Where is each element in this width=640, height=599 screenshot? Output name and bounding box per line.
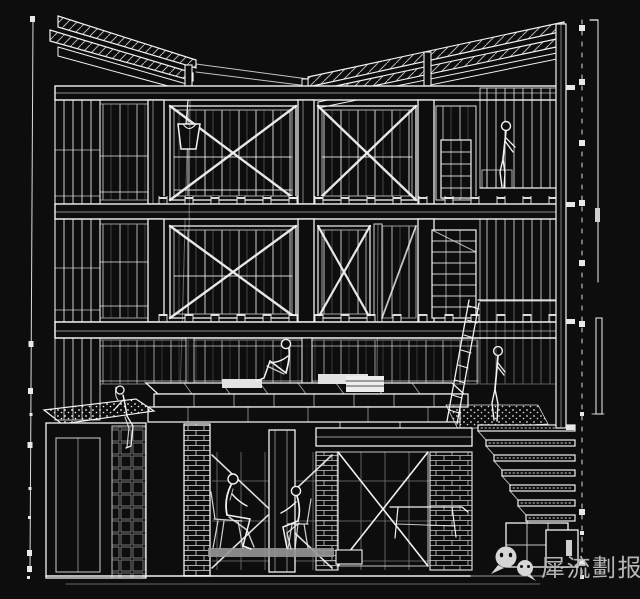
- braced-bay: [318, 106, 416, 200]
- column: [418, 100, 434, 204]
- planter-box: [44, 399, 154, 578]
- column: [148, 219, 164, 322]
- architectural-section-drawing: 犀流劃报: [0, 0, 640, 599]
- mat-stack: [346, 376, 384, 392]
- column: [148, 100, 164, 204]
- column: [298, 100, 314, 204]
- shelf-unit: [441, 140, 471, 198]
- brick-wall: [430, 452, 472, 570]
- ladder-shelf-unit: [432, 230, 476, 318]
- column: [298, 219, 314, 322]
- watermark-text: 犀流劃报: [541, 555, 640, 582]
- floor-strip: [208, 548, 334, 557]
- braced-bay: [318, 226, 370, 318]
- screenshot-root: 犀流劃报: [0, 0, 640, 599]
- mat: [222, 379, 262, 388]
- brick-column: [184, 424, 210, 576]
